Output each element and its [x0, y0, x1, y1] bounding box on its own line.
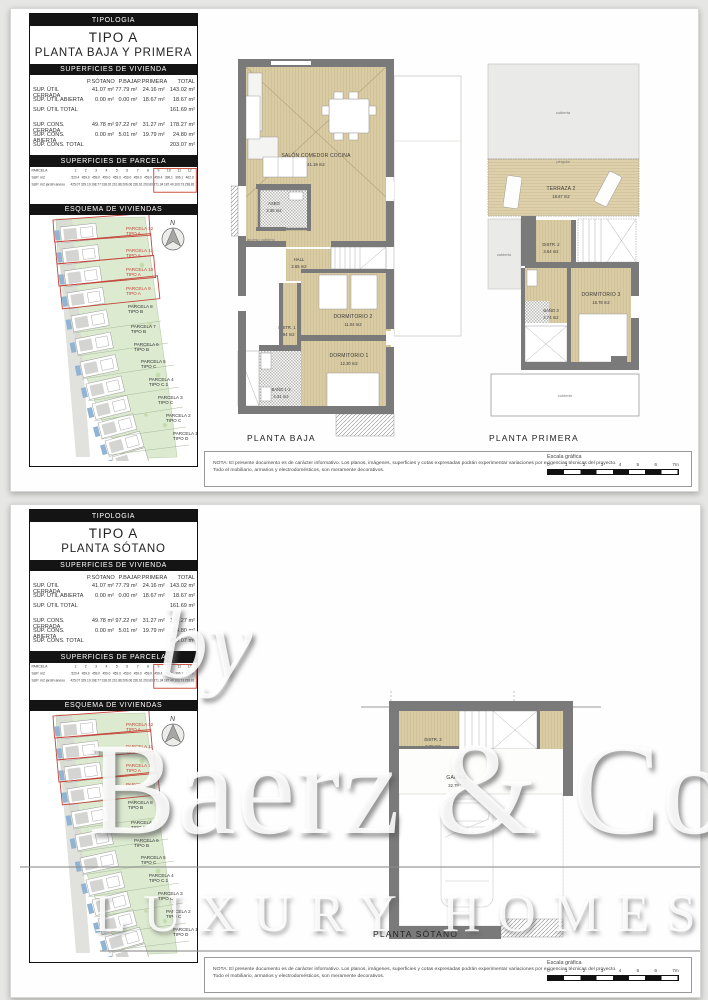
site-parcel-label: PARCELA 9TIPO A [126, 782, 151, 793]
site-parcel-label: PARCELA 10TIPO A [126, 267, 153, 278]
parcela-table: PARCELA 123456789101112 SUP. m2 520.4459… [30, 167, 196, 190]
site-parcel-label: PARCELA 10TIPO A [126, 763, 153, 774]
svg-text:N: N [170, 716, 176, 723]
tipo-title: TIPO A [30, 526, 197, 541]
scale-bar-graphic [547, 975, 679, 981]
plan-baja-title: PLANTA BAJA [247, 433, 316, 443]
col-pbaja: P.BAJA [114, 79, 137, 85]
col-pprimera: P.PRIMERA [137, 575, 165, 581]
site-parcel-label: PARCELA 6TIPO B [134, 342, 159, 353]
planta-baja-plan: SALÓN COMEDOR COCINA 41.19 m2 ASEO 3.36 … [231, 51, 481, 441]
compass-icon: N [162, 716, 184, 746]
nota-box: NOTA: El presente documento es de caráct… [204, 957, 692, 993]
info-panel: TIPOLOGIA TIPO A PLANTA BAJA Y PRIMERA S… [29, 13, 198, 467]
tipologia-bar: TIPOLOGIA [30, 14, 197, 26]
table-row: SUP. ÚTIL TOTAL 161.69 m² [33, 107, 195, 117]
parcela-sup-row: SUP. m2 520.4459.0459.0459.0459.0459.045… [31, 175, 195, 182]
superficies-vivienda-bar: SUPERFICIES DE VIVIENDA [30, 64, 197, 76]
site-plan-drawing: N [30, 711, 193, 957]
room-label: DORMITORIO 2 [334, 314, 373, 320]
room-label: cubierto [558, 393, 573, 398]
nota-box: NOTA: El presente documento es de caráct… [204, 451, 692, 487]
planta-title: PLANTA BAJA Y PRIMERA [30, 47, 197, 59]
stairs [459, 711, 537, 749]
parcela-label: PARCELA [31, 168, 70, 171]
vivienda-table-rows: SUP. ÚTIL CERRADA 41.07 m² 77.79 m² 24.1… [33, 583, 195, 648]
room-label: ASEO [268, 201, 280, 206]
site-parcel-label: PARCELA 8TIPO B [128, 800, 153, 811]
site-parcel-label: PARCELA 5TIPO C [141, 359, 166, 370]
site-parcel-label: PARCELA 9TIPO A [126, 286, 151, 297]
site-plan-drawing: N [30, 215, 193, 461]
table-row: SUP. CONS. TOTAL 203.07 m² [33, 142, 195, 152]
esquema-bar: ESQUEMA DE VIVIENDAS [30, 700, 197, 712]
svg-text:18.67 m2: 18.67 m2 [552, 194, 570, 199]
parcela-header-row: PARCELA 123456789101112 [31, 664, 195, 671]
site-parcel-label: PARCELA 11TIPO A [126, 744, 153, 755]
site-parcel-label: PARCELA 4TIPO C.1 [149, 377, 174, 388]
scale-bar: Escala gráfica 01234567m [547, 960, 679, 981]
room-label: DORMITORIO 3 [582, 292, 621, 298]
title-box: TIPO A PLANTA SÓTANO [30, 522, 197, 560]
svg-text:2.65 m2: 2.65 m2 [291, 264, 307, 269]
parcela-jardin-row: SUP. m2 jardín anexo 425.07329.19198.773… [31, 182, 195, 189]
col-pprimera: P.PRIMERA [137, 79, 165, 85]
site-plan: N PARCELA 12TIPO A PARCELA 11TIPO A PARC… [30, 711, 197, 962]
table-row: SUP. ÚTIL CERRADA 41.07 m² 77.79 m² 24.1… [33, 583, 195, 593]
col-psotano: P.SÓTANO [87, 79, 114, 85]
room-label: cubierta [556, 110, 571, 115]
room-label: cubierto [497, 252, 512, 257]
svg-text:41.19 m2: 41.19 m2 [307, 162, 325, 167]
col-psotano: P.SÓTANO [87, 575, 114, 581]
table-row: SUP. CONS. TOTAL 203.07 m² [33, 638, 195, 648]
room-label: pérgola [556, 159, 570, 164]
parcela-label: PARCELA [31, 664, 70, 667]
superficies-parcela-bar: SUPERFICIES DE PARCELA [30, 651, 197, 663]
scale-bar: Escala gráfica 01234567m [547, 454, 679, 475]
tipologia-bar: TIPOLOGIA [30, 510, 197, 522]
site-parcel-label: PARCELA 4TIPO C.1 [149, 873, 174, 884]
svg-text:15.78 m2: 15.78 m2 [592, 300, 610, 305]
planta-sotano-plan: DISTR. 3 8.28 m2 GARAJE 32.79 m2 [361, 691, 601, 946]
site-parcel-label: PARCELA 6TIPO B [134, 838, 159, 849]
svg-text:4.74 m2: 4.74 m2 [543, 315, 559, 320]
site-parcel-label: PARCELA 3TIPO C [158, 395, 183, 406]
table-row: SUP. ÚTIL ABIERTA 0.00 m² 0.00 m² 18.67 … [33, 593, 195, 603]
site-parcel-label: PARCELA 1TIPO D [173, 431, 198, 442]
room-label: HALL [294, 257, 305, 262]
title-box: TIPO A PLANTA BAJA Y PRIMERA [30, 26, 197, 64]
table-row: SUP. CONS. ABIERTA 0.00 m² 5.01 m² 19.79… [33, 628, 195, 638]
parcela-table: PARCELA 123456789101112 SUP. m2 520.4459… [30, 663, 196, 686]
exterior-steps [336, 414, 394, 436]
room-label: DISTR. 2 [542, 242, 560, 247]
vivienda-table-rows: SUP. ÚTIL CERRADA 41.07 m² 77.79 m² 24.1… [33, 87, 195, 152]
site-parcel-label: PARCELA 2TIPO C [166, 413, 191, 424]
site-parcel-label: PARCELA 8TIPO B [128, 304, 153, 315]
plan-sotano-title: PLANTA SÓTANO [373, 929, 458, 939]
room-label: DORMITORIO 1 [330, 353, 369, 359]
planta-primera-plan: cubierta pérgola TERRAZA 2 18.67 m2 cubi… [481, 56, 646, 421]
planta-title: PLANTA SÓTANO [30, 543, 197, 555]
compass-icon: N [162, 220, 184, 250]
room-label: DISTR. 3 [424, 737, 442, 742]
vivienda-table: P.SÓTANO P.BAJA P.PRIMERA TOTAL SUP. ÚTI… [30, 75, 197, 155]
site-parcel-label: PARCELA 5TIPO C [141, 855, 166, 866]
site-parcel-label: PARCELA 12TIPO A [126, 226, 153, 237]
col-pbaja: P.BAJA [114, 575, 137, 581]
svg-text:3.36 m2: 3.36 m2 [266, 208, 282, 213]
svg-text:3.64 m2: 3.64 m2 [543, 249, 559, 254]
col-total: TOTAL [165, 575, 195, 581]
parcela-table-wrap: PARCELA 123456789101112 SUP. m2 520.4459… [30, 167, 197, 204]
info-panel: TIPOLOGIA TIPO A PLANTA SÓTANO SUPERFICI… [29, 509, 198, 963]
superficies-vivienda-bar: SUPERFICIES DE VIVIENDA [30, 560, 197, 572]
esquema-bar: ESQUEMA DE VIVIENDAS [30, 204, 197, 216]
room-label: TERRAZA 2 [546, 186, 575, 192]
room-label: BAÑO 1-2 [271, 387, 291, 392]
svg-text:11.04 m2: 11.04 m2 [344, 322, 362, 327]
room-label: BAÑO 3 [543, 308, 559, 313]
vivienda-table: P.SÓTANO P.BAJA P.PRIMERA TOTAL SUP. ÚTI… [30, 571, 197, 651]
site-plan: N PARCELA 12TIPO A PARCELA 11TIPO A PARC… [30, 215, 197, 466]
svg-text:4.31 m2: 4.31 m2 [273, 394, 289, 399]
plan-primera-title: PLANTA PRIMERA [489, 433, 579, 443]
table-row: SUP. CONS. CERRADA 49.78 m² 97.22 m² 31.… [33, 122, 195, 132]
svg-text:N: N [170, 220, 176, 227]
parcela-numbers: 123456789101112 [70, 168, 195, 171]
dining-table [322, 92, 376, 140]
table-row: SUP. CONS. CERRADA 49.78 m² 97.22 m² 31.… [33, 618, 195, 628]
vivienda-table-header: P.SÓTANO P.BAJA P.PRIMERA TOTAL [33, 575, 195, 581]
stairs [578, 219, 636, 262]
svg-text:32.79 m2: 32.79 m2 [448, 783, 466, 788]
parcela-header-row: PARCELA 123456789101112 [31, 168, 195, 175]
site-parcel-label: PARCELA 7TIPO B [131, 324, 156, 335]
site-parcel-label: PARCELA 2TIPO C [166, 909, 191, 920]
vivienda-table-header: P.SÓTANO P.BAJA P.PRIMERA TOTAL [33, 79, 195, 85]
superficies-parcela-bar: SUPERFICIES DE PARCELA [30, 155, 197, 167]
table-row: SUP. ÚTIL TOTAL 161.69 m² [33, 603, 195, 613]
parcela-jardin-row: SUP. m2 jardín anexo 425.07329.19198.773… [31, 678, 195, 685]
room-label: SALÓN COMEDOR COCINA [281, 152, 351, 159]
parcela-table-wrap: PARCELA 123456789101112 SUP. m2 520.4459… [30, 663, 197, 700]
table-row: SUP. ÚTIL ABIERTA 0.00 m² 0.00 m² 18.67 … [33, 97, 195, 107]
site-parcel-label: PARCELA 1TIPO D [173, 927, 198, 938]
stairs [331, 247, 386, 269]
parcela-numbers: 123456789101112 [70, 664, 195, 667]
svg-text:12.30 m2: 12.30 m2 [340, 361, 358, 366]
tipo-title: TIPO A [30, 30, 197, 45]
site-parcel-label: PARCELA 7TIPO B [131, 820, 156, 831]
sheet-planta-baja-primera: TIPOLOGIA TIPO A PLANTA BAJA Y PRIMERA S… [10, 8, 699, 492]
site-parcel-label: PARCELA 3TIPO C [158, 891, 183, 902]
scale-ticks: 01234567m [547, 463, 679, 468]
scale-bar-graphic [547, 469, 679, 475]
scale-ticks: 01234567m [547, 969, 679, 974]
site-parcel-label: PARCELA 12TIPO A [126, 722, 153, 733]
site-parcel-label: PARCELA 11TIPO A [126, 248, 153, 259]
parcela-sup-row: SUP. m2 520.4459.0459.0459.0459.0459.045… [31, 671, 195, 678]
sheet-planta-sotano: TIPOLOGIA TIPO A PLANTA SÓTANO SUPERFICI… [10, 504, 701, 998]
table-row: SUP. ÚTIL CERRADA 41.07 m² 77.79 m² 24.1… [33, 87, 195, 97]
col-total: TOTAL [165, 79, 195, 85]
room-label: GARAJE [446, 775, 468, 781]
table-row: SUP. CONS. ABIERTA 0.00 m² 5.01 m² 19.79… [33, 132, 195, 142]
